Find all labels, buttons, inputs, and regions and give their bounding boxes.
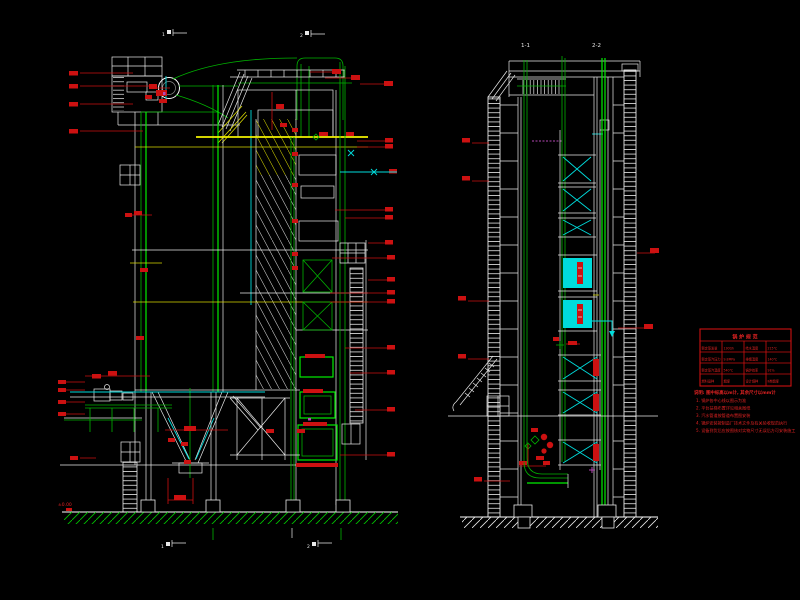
front-elevation-view: ±0.00 [58, 57, 398, 540]
note-item: 4. 锅炉安装按制造厂技术文件及有关验收规范执行 [696, 420, 787, 426]
spec-cell: 燃料品种 [702, 379, 715, 384]
spec-cell: 140℃ [768, 358, 778, 362]
spec-cell: 烟煤 [724, 379, 731, 384]
side-view-section-labels: 1-1 2-2 [521, 43, 601, 49]
lower-tube-coils [558, 355, 601, 473]
lattice-frame-right-of-hopper [230, 398, 300, 460]
section-marker-label: 2 [300, 33, 303, 39]
red-dimension-leaders-left [58, 71, 152, 460]
section-marker-label: 1 [161, 544, 164, 550]
boiler-arrangement-drawing: ±0.00 [0, 0, 800, 600]
section-marker-bottom-right: 2 [307, 540, 332, 550]
spec-cell: Ⅱ类烟煤 [768, 379, 780, 384]
section-cut-markers: 1 2 1 2 [161, 29, 332, 550]
note-item: 1. 锅炉各中心线以图示为准 [696, 397, 746, 403]
top-left-air-heater-unit [112, 57, 240, 185]
note-item: 5. 设备到货后应按图核对实物尺寸无误后方可安装施工 [696, 427, 795, 433]
side-elevation-view: 1-1 2-2 [448, 43, 659, 528]
cad-drawing-canvas: ±0.00 [0, 0, 800, 600]
spec-cell: 额定蒸汽压力 [702, 357, 721, 362]
lower-green-panels [296, 354, 338, 467]
section-marker-bottom-left: 1 [161, 540, 186, 550]
spec-cell: 排烟温度 [746, 357, 760, 362]
spec-table-title: 锅 炉 规 范 [731, 334, 757, 341]
section-marker-top-right: 2 [300, 30, 325, 39]
spec-cell: 设计煤种 [746, 379, 759, 384]
coal-feeder-machine [70, 385, 265, 433]
ground-elevation-label: ±0.00 [58, 502, 72, 511]
note-item: 3. 汽水管道按管道布置图安装 [696, 412, 750, 418]
spec-cell: 9.8MPa [724, 358, 736, 362]
spec-cell: 215℃ [768, 347, 778, 351]
rear-pass-tube-banks [299, 155, 338, 241]
platform-lines [60, 62, 368, 512]
rear-ladder-column [340, 243, 365, 444]
upper-tube-coils [558, 155, 596, 237]
spec-cell: 额定蒸发量 [702, 346, 719, 351]
section-marker-label: 1 [162, 32, 165, 38]
spec-cell: 540℃ [724, 369, 734, 373]
boiler-spec-table: 锅 炉 规 范 额定蒸发量 130t/h 给水温度 215℃ 额定蒸汽压力 9.… [700, 329, 791, 386]
spec-cell: 额定蒸汽温度 [702, 368, 722, 373]
main-columns [500, 56, 624, 517]
side-view-label-right: 2-2 [592, 43, 601, 49]
spec-cell: 给水温度 [746, 346, 760, 351]
spec-cell: 91% [768, 369, 775, 373]
ash-hopper [146, 388, 230, 512]
section-marker-label: 2 [307, 544, 310, 550]
notes-header: 说明: 图中标高以m计, 其余尺寸以mm计 [694, 389, 776, 396]
note-item: 2. 平台扶梯布置详见相关图纸 [696, 405, 750, 411]
notes-block: 说明: 图中标高以m计, 其余尺寸以mm计 1. 锅炉各中心线以图示为准 2. … [694, 389, 795, 433]
ground-elevation-text: ±0.00 [58, 502, 72, 508]
section-marker-top-left: 1 [162, 29, 187, 38]
top-structure [509, 61, 640, 141]
outer-ladder-columns [488, 64, 638, 517]
ground-left-view [62, 500, 398, 540]
spec-cell: 锅炉效率 [746, 368, 760, 373]
spec-cell: 130t/h [724, 347, 734, 351]
cross-braced-panels [303, 260, 332, 330]
lower-left-ladder [121, 442, 140, 512]
side-view-label-left: 1-1 [521, 43, 530, 49]
